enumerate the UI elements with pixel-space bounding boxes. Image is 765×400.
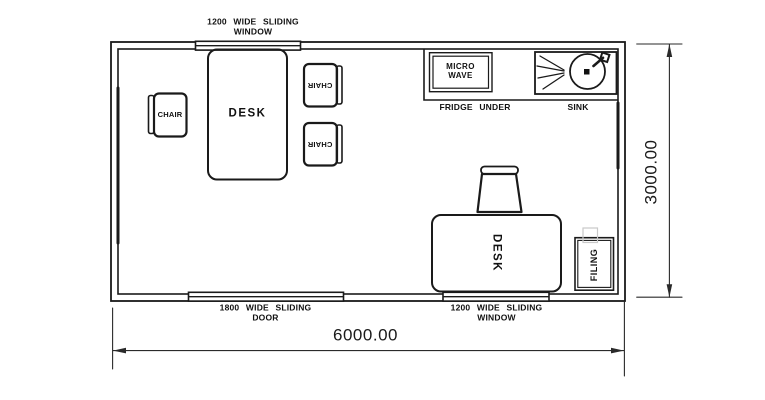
microwave-label-line2: WAVE — [446, 72, 475, 81]
sink-unit — [535, 52, 617, 94]
door-label: 1800 WIDE SLIDING DOOR — [220, 303, 312, 322]
arrow-right — [611, 348, 624, 354]
bottom-window-label-line2: WINDOW — [451, 313, 543, 323]
chair-left-label: CHAIR — [158, 110, 183, 118]
top-window-label-line2: WINDOW — [207, 27, 299, 37]
filing-label: FILING — [588, 248, 598, 281]
sink-plug — [584, 69, 590, 75]
chair-right-2-label: CHAIR — [307, 140, 332, 148]
drainer-lines — [537, 56, 564, 89]
wall-outline — [111, 42, 625, 301]
microwave-label: MICRO WAVE — [446, 63, 475, 81]
bottom-window-label: 1200 WIDE SLIDING WINDOW — [451, 303, 543, 322]
fridge-under-label: FRIDGE UNDER — [439, 103, 510, 113]
floor-plan: 1200 WIDE SLIDING WINDOW MICRO WAVE FRID… — [0, 0, 765, 400]
arrow-up — [667, 44, 673, 57]
arrow-left — [113, 348, 126, 354]
bottom-window-symbol — [443, 292, 549, 301]
door-label-line2: DOOR — [220, 313, 312, 323]
width-dimension-value: 6000.00 — [333, 325, 398, 344]
desk-bottom-label: DESK — [490, 234, 503, 272]
height-dimension-value: 3000.00 — [641, 139, 660, 204]
desk-top-label: DESK — [229, 108, 267, 121]
top-window-label: 1200 WIDE SLIDING WINDOW — [207, 17, 299, 36]
arrow-down — [667, 284, 673, 297]
sink-label: SINK — [567, 103, 588, 113]
chair-right-1-label: CHAIR — [307, 81, 332, 89]
chair-bottom — [478, 167, 522, 213]
tap — [600, 53, 609, 62]
sliding-door-symbol — [189, 292, 344, 301]
